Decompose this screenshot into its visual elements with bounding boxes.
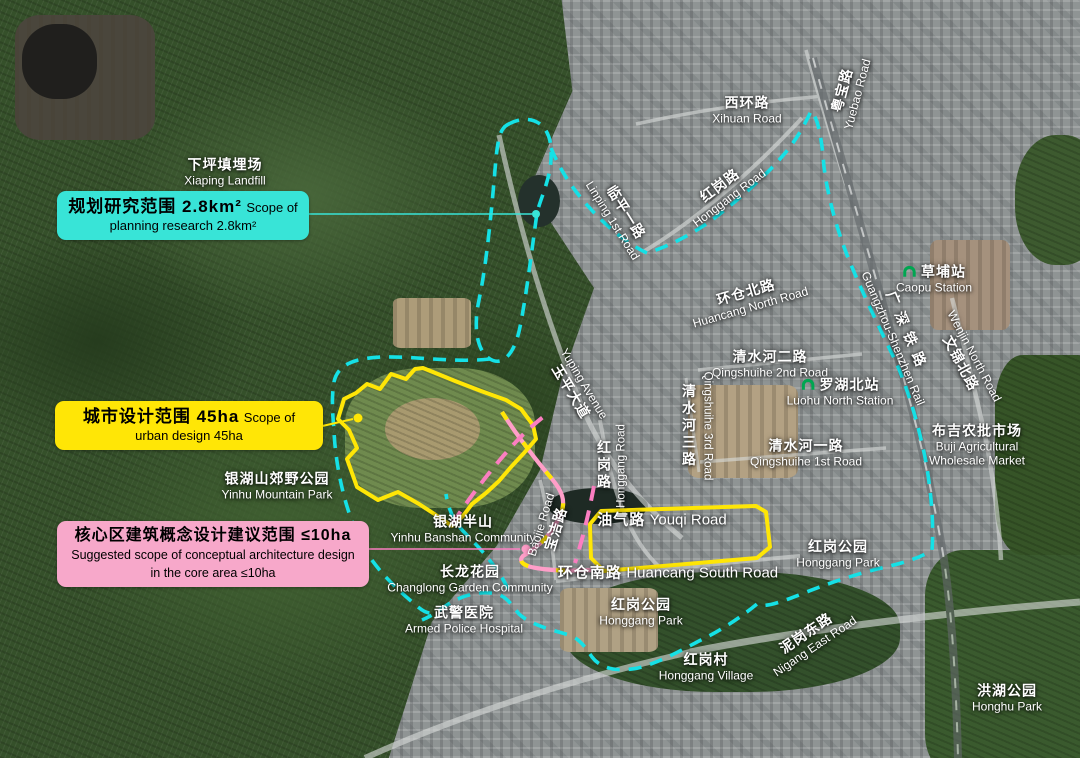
map-label-honggang-village: 红岗村Honggang Village bbox=[659, 652, 754, 683]
map-label-honggang-park-center: 红岗公园Honggang Park bbox=[599, 597, 682, 628]
core-area-label-en1: Suggested scope of conceptual architectu… bbox=[71, 548, 355, 562]
map-label-luohu-north-station: 罗湖北站Luohu North Station bbox=[787, 377, 894, 408]
core-area-label-zh: 核心区建筑概念设计建议范围 ≤10ha bbox=[75, 527, 352, 544]
core-area-scope-legend: 核心区建筑概念设计建议范围 ≤10ha Suggested scope of c… bbox=[57, 521, 369, 587]
shenzhen-metro-icon bbox=[902, 264, 917, 279]
urban-design-label-zh: 城市设计范围 45ha bbox=[83, 407, 239, 426]
map-label-huancang-south-road: 环仓南路 Huancang South Road bbox=[558, 565, 778, 584]
map-label-honggang-road-vertical: 红岗路Honggang Road bbox=[595, 424, 628, 508]
planning-scope-label-zh: 规划研究范围 2.8km² bbox=[68, 197, 242, 216]
map-label-armed-police-hospital: 武警医院Armed Police Hospital bbox=[405, 605, 523, 636]
planning-map: 规划研究范围 2.8km² Scope of planning research… bbox=[0, 0, 1080, 758]
map-label-caopu-station: 草埔站Caopu Station bbox=[896, 264, 972, 295]
leader-lines bbox=[303, 210, 540, 554]
shenzhen-metro-icon bbox=[801, 377, 816, 392]
map-label-honggang-park-east: 红岗公园Honggang Park bbox=[796, 539, 879, 570]
urban-design-boundary-west bbox=[338, 368, 536, 526]
map-label-qingshuihe-1st-road: 清水河一路Qingshuihe 1st Road bbox=[750, 438, 862, 469]
boundary-loop-north bbox=[476, 119, 551, 361]
map-label-buji-agricultural-market: 布吉农批市场Buji AgriculturalWholesale Market bbox=[929, 423, 1025, 468]
planning-leader-dot bbox=[532, 210, 540, 218]
urban-leader-dot bbox=[354, 414, 363, 423]
map-label-honghu-park: 洪湖公园Honghu Park bbox=[972, 683, 1042, 714]
urban-leader-line bbox=[318, 419, 353, 427]
map-label-changlong-garden-community: 长龙花园Changlong Garden Community bbox=[387, 564, 552, 595]
map-label-xihuan-road: 西环路Xihuan Road bbox=[712, 95, 781, 126]
map-label-qingshuihe-2nd-road: 清水河二路Qingshuihe 2nd Road bbox=[712, 349, 828, 380]
core-area-label-en2: in the core area ≤10ha bbox=[151, 566, 276, 580]
map-label-yinhu-mountain-park: 银湖山郊野公园Yinhu Mountain Park bbox=[222, 471, 333, 502]
map-label-yinhu-banshan-community: 银湖半山Yinhu Banshan Community bbox=[391, 514, 536, 545]
map-label-youqi-road: 油气路 Youqi Road bbox=[597, 512, 726, 531]
map-label-xiaping-landfill: 下坪填埋场Xiaping Landfill bbox=[184, 157, 265, 188]
urban-design-scope-legend: 城市设计范围 45ha Scope of urban design 45ha bbox=[55, 401, 323, 450]
map-label-qingshuihe-3rd-road: 清水河三路Qingshuihe 3rd Road bbox=[680, 372, 713, 481]
planning-scope-legend: 规划研究范围 2.8km² Scope of planning research… bbox=[57, 191, 309, 240]
